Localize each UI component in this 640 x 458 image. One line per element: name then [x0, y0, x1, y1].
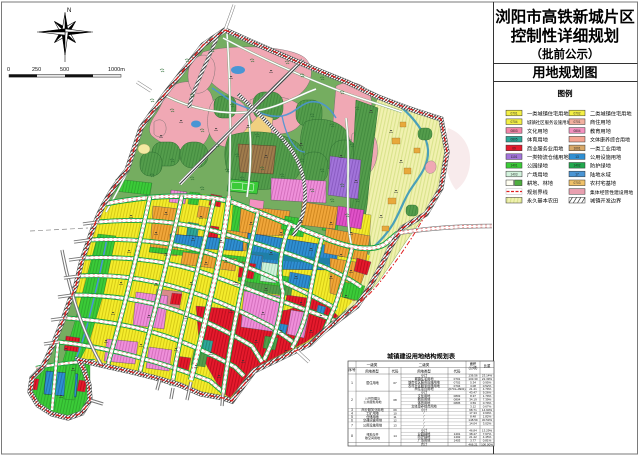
svg-text:规划界线: 规划界线	[527, 188, 548, 196]
svg-text:500: 500	[60, 67, 69, 73]
svg-text:图例: 图例	[558, 88, 573, 98]
svg-text:0803: 0803	[510, 129, 517, 133]
svg-text:防护绿地: 防护绿地	[590, 162, 611, 170]
svg-text:0703: 0703	[573, 181, 580, 185]
svg-text:14.04: 14.04	[469, 421, 477, 425]
svg-text:08: 08	[393, 398, 397, 402]
svg-text:陆地水域: 陆地水域	[590, 170, 611, 178]
svg-text:教育用地: 教育用地	[590, 127, 611, 135]
svg-text:07: 07	[393, 381, 397, 385]
svg-text:一类物流仓储用地: 一类物流仓储用地	[527, 153, 569, 161]
svg-text:100.00%: 100.00%	[481, 443, 493, 447]
svg-text:250: 250	[32, 67, 41, 73]
svg-text:1: 1	[351, 381, 353, 385]
svg-text:序号: 序号	[348, 367, 356, 372]
svg-text:1101: 1101	[511, 155, 518, 159]
svg-text:二级类: 二级类	[419, 362, 430, 367]
svg-text:城镇社区服务设施用地: 城镇社区服务设施用地	[527, 119, 572, 126]
svg-text:1402: 1402	[573, 164, 580, 168]
svg-text:2: 2	[351, 398, 353, 402]
svg-text:13: 13	[575, 155, 579, 159]
svg-text:公共服务用地: 公共服务用地	[363, 399, 381, 404]
svg-text:466.21: 466.21	[468, 443, 478, 447]
svg-text:公用设施用地: 公用设施用地	[590, 153, 621, 161]
svg-text:耕地、林地: 耕地、林地	[527, 179, 553, 187]
svg-text:居住用地: 居住用地	[366, 380, 380, 385]
svg-text:14: 14	[393, 434, 397, 438]
svg-text:0: 0	[7, 67, 10, 73]
svg-text:二类城镇住宅用地: 二类城镇住宅用地	[590, 109, 632, 117]
svg-text:浏阳市高铁新城片区: 浏阳市高铁新城片区	[495, 7, 635, 26]
svg-text:代码: 代码	[454, 369, 461, 374]
svg-text:1403: 1403	[454, 439, 461, 443]
svg-text:公园绿地: 公园绿地	[527, 162, 548, 170]
svg-text:代码: 代码	[392, 369, 399, 374]
svg-text:3.02%: 3.02%	[483, 421, 492, 425]
svg-text:商业服务业用地: 商业服务业用地	[527, 144, 563, 152]
svg-text:比重: 比重	[484, 363, 491, 368]
svg-text:0805: 0805	[454, 401, 461, 405]
svg-text:文体康养综合用地: 文体康养综合用地	[590, 137, 630, 144]
svg-text:公用设施用地: 公用设施用地	[363, 423, 383, 428]
svg-text:集体经营性建设用地: 集体经营性建设用地	[590, 189, 633, 196]
svg-text:一类城镇住宅用地: 一类城镇住宅用地	[527, 109, 569, 117]
svg-text:09: 09	[512, 146, 516, 150]
svg-text:0701: 0701	[573, 120, 580, 124]
svg-text:N: N	[67, 8, 71, 14]
svg-text:1001: 1001	[573, 146, 580, 150]
svg-text:合计: 合计	[421, 442, 428, 447]
svg-text:7: 7	[351, 424, 353, 428]
svg-text:(公顷): (公顷)	[469, 365, 478, 370]
svg-text:永久基本农田: 永久基本农田	[527, 197, 558, 205]
svg-text:1403: 1403	[510, 172, 517, 176]
svg-text:17: 17	[575, 172, 579, 176]
svg-text:城镇建设用地结构规划表: 城镇建设用地结构规划表	[387, 353, 456, 361]
svg-text:控制性详细规划: 控制性详细规划	[511, 26, 620, 45]
svg-text:广场用地: 广场用地	[527, 170, 548, 178]
svg-text:0804: 0804	[573, 129, 580, 133]
svg-text:文化用地: 文化用地	[527, 127, 548, 135]
svg-text:农村宅基地: 农村宅基地	[590, 179, 616, 187]
svg-text:敞空间用地: 敞空间用地	[365, 435, 380, 440]
svg-text:0704: 0704	[510, 120, 517, 124]
svg-text:用地规划图: 用地规划图	[531, 65, 597, 80]
svg-text:0805: 0805	[510, 138, 517, 142]
svg-text:(0701+0901): (0701+0901)	[448, 387, 465, 391]
svg-text:8: 8	[351, 434, 353, 438]
svg-text:0702: 0702	[573, 111, 580, 115]
svg-text:1000m: 1000m	[108, 67, 125, 73]
svg-text:体育用地: 体育用地	[527, 136, 548, 144]
svg-text:1401: 1401	[510, 164, 517, 168]
svg-text:用地类型: 用地类型	[365, 369, 379, 374]
svg-text:商住用地: 商住用地	[590, 118, 611, 126]
svg-text:（批前公示）: （批前公示）	[531, 47, 600, 61]
svg-text:城镇开发边界: 城镇开发边界	[590, 197, 621, 205]
svg-text:一级类: 一级类	[367, 362, 378, 367]
svg-text:交通运输用地: 交通运输用地	[363, 417, 383, 422]
svg-text:13: 13	[393, 424, 397, 428]
svg-text:一类工业用地: 一类工业用地	[590, 144, 621, 152]
svg-text:0701: 0701	[510, 111, 517, 115]
